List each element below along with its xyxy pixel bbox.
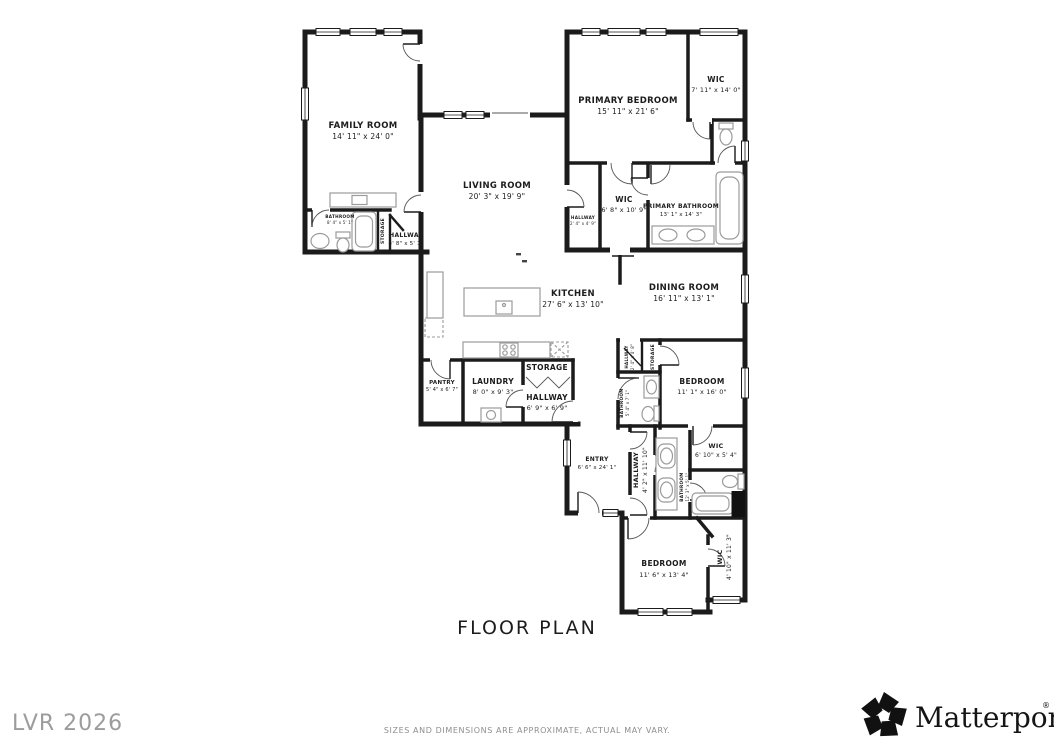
- round-sink-fixture: [311, 234, 329, 249]
- toilet-bowl-fixture: [337, 238, 349, 252]
- sink-fixture: [352, 196, 367, 205]
- matterport-pinwheel-icon: [858, 692, 912, 744]
- room-label-wic-mid: WIC: [708, 442, 723, 450]
- room-label-bathroom-family: BATHROOM: [325, 214, 354, 219]
- room-dims-living-room: 20' 3" x 19' 9": [469, 192, 526, 201]
- toilet-tank-fixture: [336, 232, 350, 238]
- room-dims-family-room: 14' 11" x 24' 0": [332, 132, 394, 141]
- room-label-hallway-family: HALLWAY: [389, 232, 423, 239]
- room-dims-primary-bathroom: 13' 1" x 14' 3": [660, 212, 702, 218]
- room-dims-laundry: 8' 0" x 9' 3": [473, 388, 514, 396]
- room-dims-wic-top: 7' 11" x 14' 0": [691, 86, 740, 94]
- room-label-dining-room: DINING ROOM: [649, 283, 719, 293]
- fireplace-black-box: [732, 491, 746, 517]
- room-label-bathroom-mid: BATHROOM: [619, 388, 624, 417]
- room-label-bathroom-entry: BATHROOM: [679, 472, 684, 501]
- room-dims-bedroom-mid: 11' 1" x 16' 0": [677, 388, 726, 396]
- room-dims-wic-mid: 6' 10" x 5' 4": [695, 452, 737, 459]
- room-dims-pantry: 5' 4" x 6' 7": [426, 387, 458, 393]
- floorplan-canvas: FAMILY ROOM 14' 11" x 24' 0" LIVING ROOM…: [0, 0, 1054, 745]
- watermark-text: LVR 2026: [12, 711, 123, 736]
- room-dims-hallway-main: 6' 9" x 6' 9": [527, 404, 568, 412]
- room-dims-kitchen: 27' 6" x 13' 10": [542, 300, 604, 309]
- toilet-tank-fixture: [738, 474, 744, 489]
- toilet-bowl-fixture: [720, 129, 732, 145]
- room-label-hallway-primary: HALLWAY: [571, 215, 596, 220]
- room-label-pantry: PANTRY: [429, 380, 456, 386]
- room-label-laundry: LAUNDRY: [472, 377, 514, 386]
- room-dims-bathroom-mid: 5' 4" x 7' 1": [625, 390, 630, 416]
- room-label-wic-top: WIC: [707, 75, 725, 84]
- room-label-primary-bathroom: PRIMARY BATHROOM: [643, 203, 719, 210]
- appliance-dashed-fixture: [425, 318, 443, 337]
- room-label-bedroom-bottom: BEDROOM: [641, 559, 686, 568]
- room-dims-hallway-primary: 2' 4" x 4' 9": [570, 221, 596, 226]
- disclaimer-text: SIZES AND DIMENSIONS ARE APPROXIMATE, AC…: [384, 726, 670, 735]
- toilet-tank-fixture: [719, 123, 733, 129]
- room-label-storage-family: STORAGE: [380, 218, 386, 244]
- room-label-hallway-main: HALLWAY: [526, 393, 568, 402]
- brand-wordmark: Matterport: [915, 701, 1054, 734]
- room-dims-wic-bottom: 4' 10" x 11' 3": [726, 534, 733, 580]
- room-label-wic-primary: WIC: [615, 195, 633, 204]
- room-label-kitchen: KITCHEN: [551, 289, 595, 299]
- matterport-logo: Matterport ®: [858, 692, 1054, 744]
- room-dims-primary-bedroom: 15' 11" x 21' 6": [597, 107, 659, 116]
- room-label-living-room: LIVING ROOM: [463, 181, 531, 191]
- room-label-primary-bedroom: PRIMARY BEDROOM: [578, 96, 677, 106]
- room-label-hallway-mid: HALLWAY: [624, 345, 629, 368]
- room-dims-bedroom-bottom: 11' 6" x 13' 4": [639, 571, 688, 579]
- toilet-tank-fixture: [654, 406, 659, 421]
- room-dims-dining-room: 16' 11" x 13' 1": [653, 294, 715, 303]
- counter-fixture: [427, 272, 443, 318]
- room-label-entry: ENTRY: [585, 456, 609, 463]
- room-dims-bathroom-entry: 12' 3" x 5' 1": [685, 473, 690, 502]
- floorplan-page: FAMILY ROOM 14' 11" x 24' 0" LIVING ROOM…: [0, 0, 1054, 745]
- room-dims-wic-primary: 6' 8" x 10' 9": [601, 206, 646, 214]
- page-title: FLOOR PLAN: [457, 617, 597, 639]
- toilet-bowl-fixture: [642, 407, 654, 422]
- room-dims-hallway-entry: 4' 2" x 11' 10": [642, 447, 649, 493]
- room-dims-bathroom-family: 8' 4" x 5' 1": [327, 220, 353, 225]
- room-labels: FAMILY ROOM 14' 11" x 24' 0" LIVING ROOM…: [325, 75, 740, 580]
- room-label-family-room: FAMILY ROOM: [329, 121, 398, 131]
- room-dims-hallway-family: 4' 8" x 5' 1": [389, 241, 424, 247]
- room-dims-hallway-mid: 2' 4" x 4' 8": [630, 344, 635, 370]
- room-label-hallway-entry: HALLWAY: [632, 452, 640, 488]
- brand-registered-mark: ®: [1042, 701, 1050, 710]
- room-label-storage-mid: STORAGE: [650, 344, 656, 370]
- room-label-storage-hall: STORAGE: [526, 363, 568, 372]
- room-label-wic-bottom: WIC: [716, 549, 724, 564]
- stove-fixture: [500, 343, 518, 357]
- toilet-bowl-fixture: [723, 476, 738, 488]
- room-label-bedroom-mid: BEDROOM: [679, 377, 724, 386]
- room-dims-entry: 6' 6" x 24' 1": [578, 465, 617, 471]
